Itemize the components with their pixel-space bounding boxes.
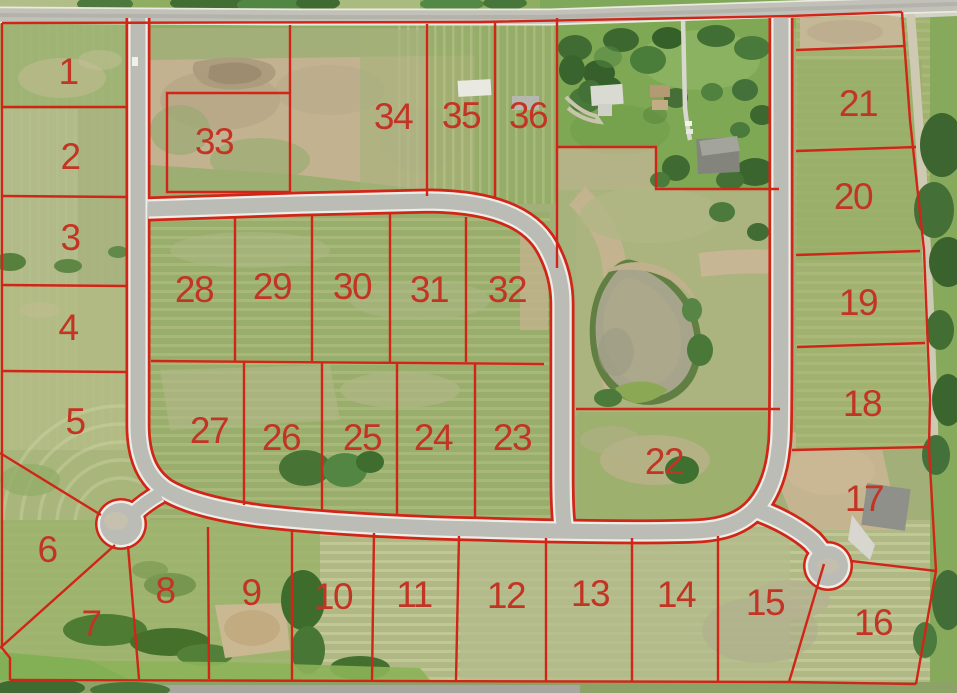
svg-text:25: 25 — [343, 417, 382, 458]
svg-text:22: 22 — [645, 441, 683, 482]
svg-text:4: 4 — [58, 307, 78, 348]
svg-text:14: 14 — [657, 574, 696, 615]
svg-text:15: 15 — [746, 582, 785, 623]
svg-text:11: 11 — [396, 574, 431, 615]
svg-text:5: 5 — [65, 401, 85, 442]
svg-text:16: 16 — [854, 602, 892, 643]
svg-text:13: 13 — [571, 573, 609, 614]
svg-text:20: 20 — [834, 176, 873, 217]
svg-text:26: 26 — [262, 417, 300, 458]
svg-text:32: 32 — [488, 269, 526, 310]
svg-text:9: 9 — [241, 572, 260, 613]
svg-text:10: 10 — [314, 576, 353, 617]
svg-text:34: 34 — [374, 96, 413, 137]
svg-text:30: 30 — [333, 266, 372, 307]
svg-text:3: 3 — [60, 217, 79, 258]
svg-text:29: 29 — [253, 266, 291, 307]
svg-text:24: 24 — [414, 417, 453, 458]
svg-text:35: 35 — [442, 95, 481, 136]
svg-text:12: 12 — [487, 575, 525, 616]
svg-text:1: 1 — [58, 51, 77, 92]
svg-text:8: 8 — [155, 570, 174, 611]
svg-text:18: 18 — [843, 383, 881, 424]
svg-text:33: 33 — [195, 121, 233, 162]
svg-text:27: 27 — [190, 410, 228, 451]
svg-text:17: 17 — [845, 478, 883, 519]
svg-text:36: 36 — [509, 95, 547, 136]
svg-text:19: 19 — [839, 282, 877, 323]
svg-text:6: 6 — [37, 529, 56, 570]
svg-text:31: 31 — [410, 269, 448, 310]
svg-text:28: 28 — [175, 269, 213, 310]
svg-text:23: 23 — [493, 417, 531, 458]
svg-text:7: 7 — [81, 603, 100, 644]
svg-text:2: 2 — [60, 136, 79, 177]
svg-text:21: 21 — [839, 83, 877, 124]
